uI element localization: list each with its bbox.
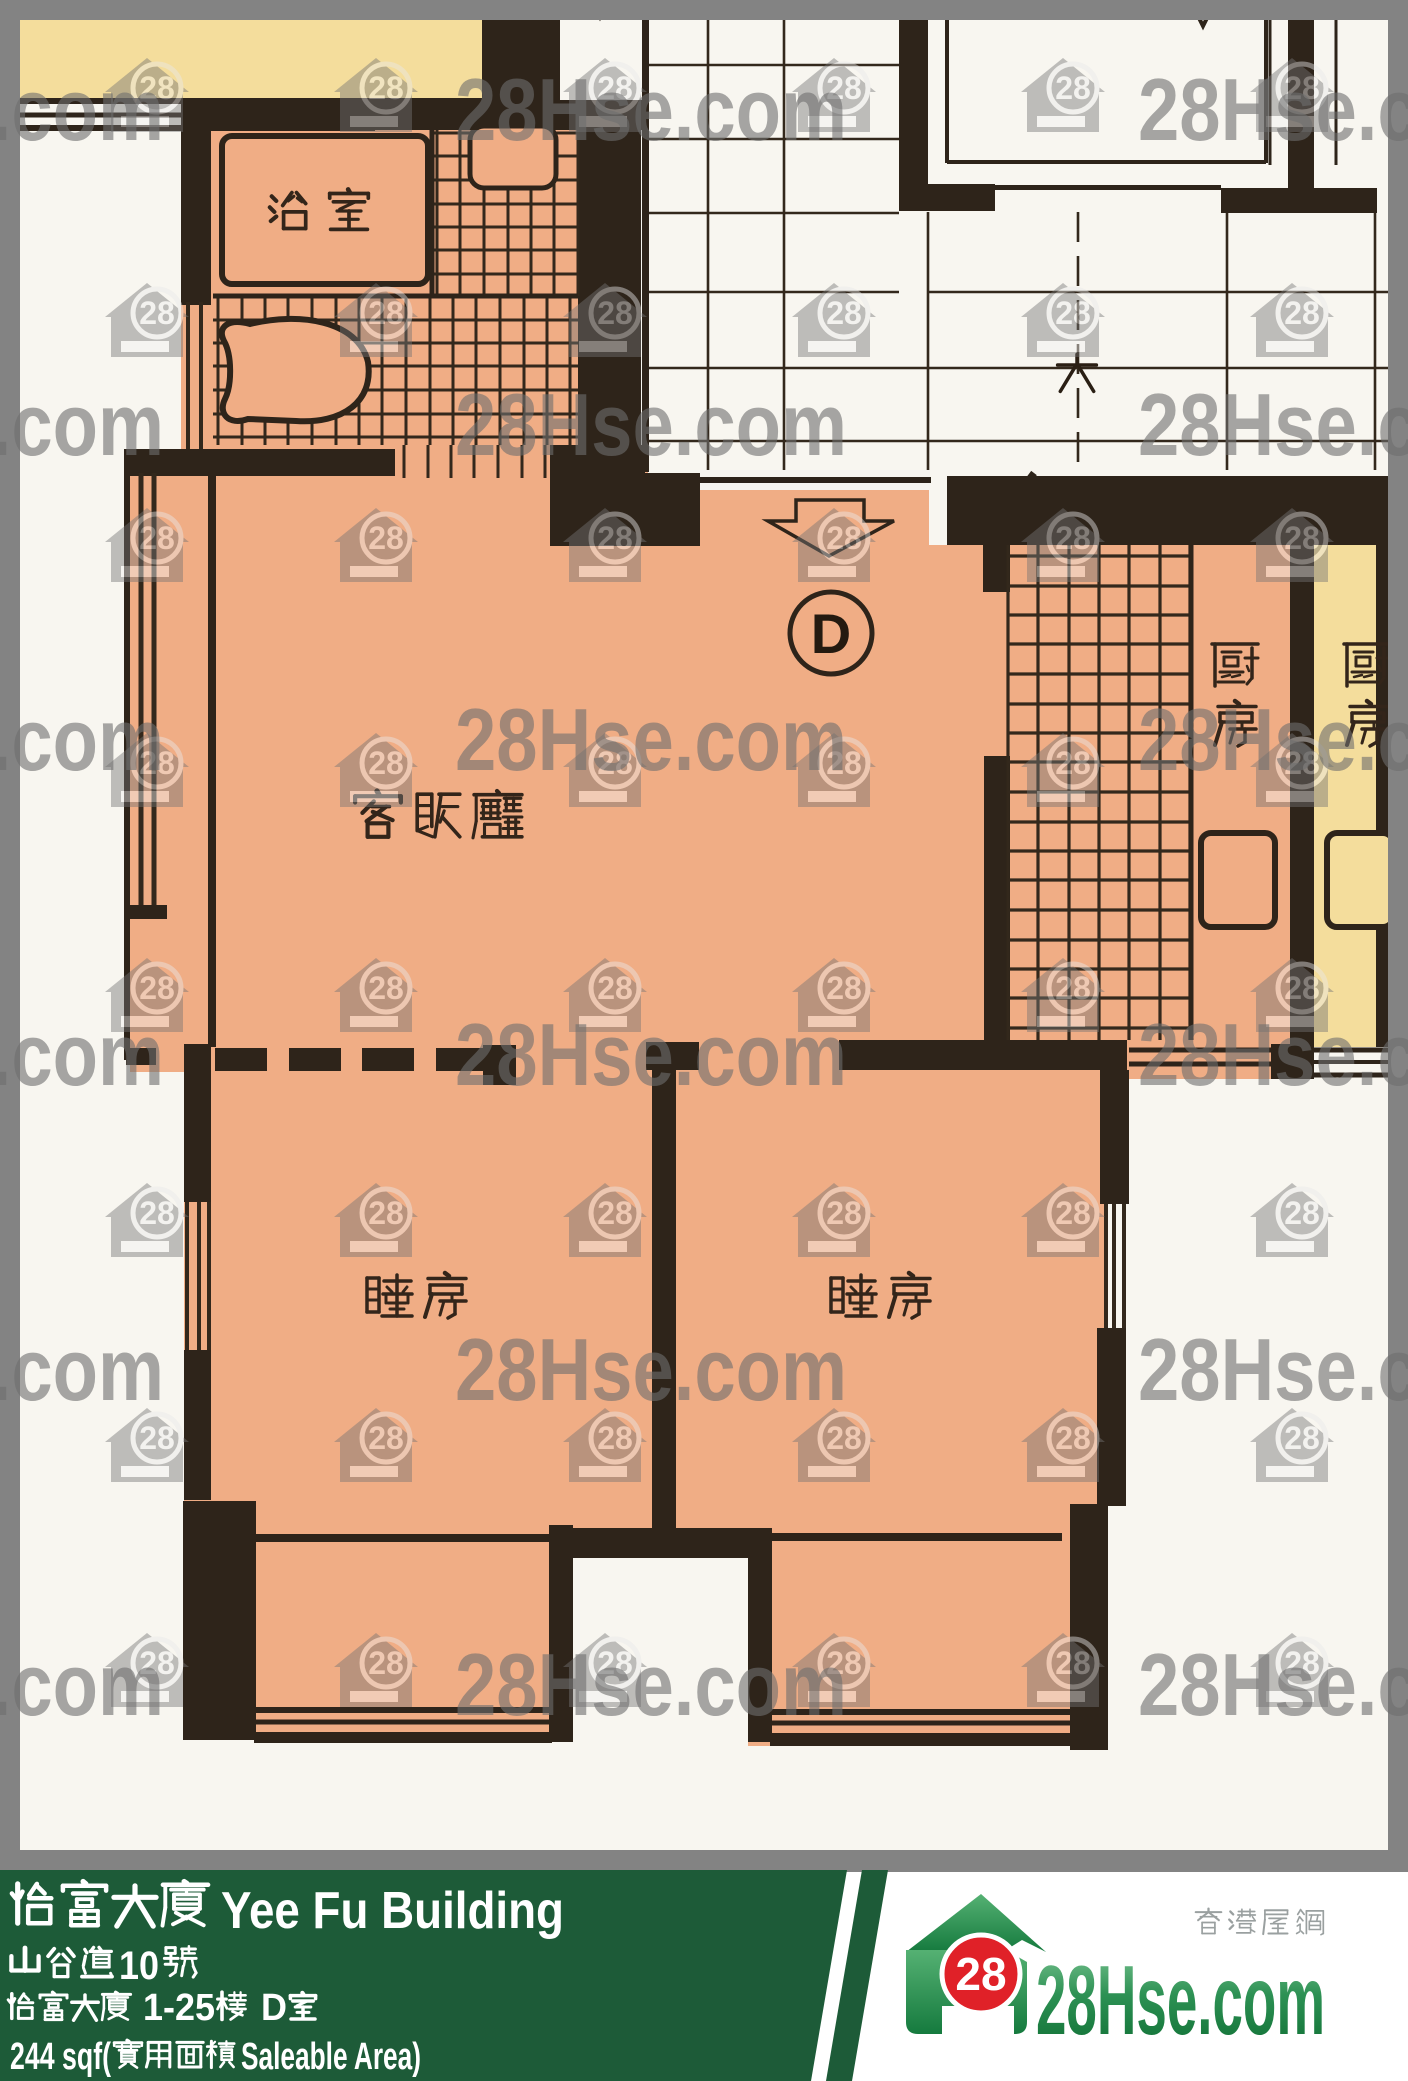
svg-text:28Hse.com: 28Hse.com — [0, 375, 164, 474]
svg-text:28Hse.com: 28Hse.com — [0, 1635, 164, 1734]
svg-text:28Hse.com: 28Hse.com — [455, 1635, 847, 1734]
svg-text:Saleable Area): Saleable Area) — [241, 2036, 421, 2078]
svg-text:28Hse.com: 28Hse.com — [455, 1005, 847, 1104]
svg-text:244 sqf(: 244 sqf( — [10, 2036, 111, 2078]
svg-text:28Hse.com: 28Hse.com — [1036, 1945, 1325, 2055]
svg-text:D: D — [811, 602, 851, 665]
svg-text:28Hse.com: 28Hse.com — [1138, 60, 1408, 159]
svg-text:1-25: 1-25 — [143, 1987, 215, 2029]
svg-text:28Hse.com: 28Hse.com — [455, 690, 847, 789]
svg-text:28Hse.com: 28Hse.com — [455, 60, 847, 159]
svg-text:28Hse.com: 28Hse.com — [0, 690, 164, 789]
svg-text:28Hse.com: 28Hse.com — [0, 1320, 164, 1419]
svg-text:28Hse.com: 28Hse.com — [1138, 1005, 1408, 1104]
svg-text:28Hse.com: 28Hse.com — [1138, 375, 1408, 474]
svg-text:28Hse.com: 28Hse.com — [1138, 690, 1408, 789]
svg-text:28Hse.com: 28Hse.com — [455, 1320, 847, 1419]
svg-text:28Hse.com: 28Hse.com — [0, 1005, 164, 1104]
svg-text:Yee Fu Building: Yee Fu Building — [221, 1882, 564, 1940]
svg-text:28Hse.com: 28Hse.com — [1138, 1635, 1408, 1734]
svg-text:28Hse.com: 28Hse.com — [1138, 1320, 1408, 1419]
svg-text:28Hse.com: 28Hse.com — [455, 375, 847, 474]
svg-text:D: D — [261, 1987, 287, 2029]
svg-text:28: 28 — [955, 1948, 1006, 2000]
svg-text:28Hse.com: 28Hse.com — [0, 60, 164, 159]
svg-text:10: 10 — [119, 1944, 159, 1988]
